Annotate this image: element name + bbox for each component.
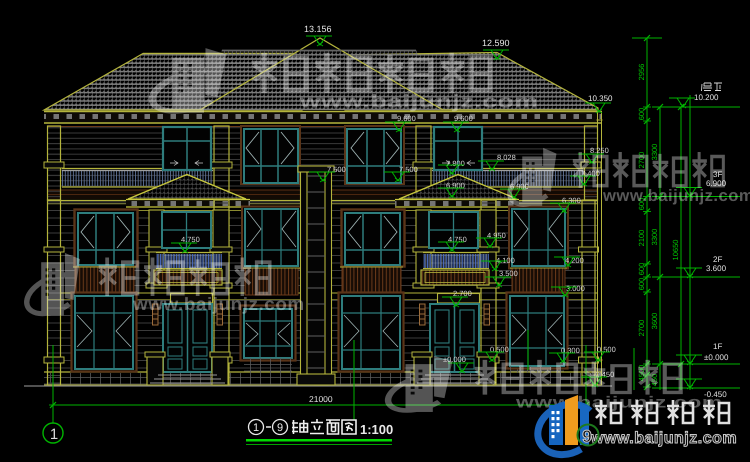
svg-text:2700: 2700 <box>637 152 646 169</box>
svg-text:7.500: 7.500 <box>327 165 346 174</box>
svg-text:10.200: 10.200 <box>694 93 719 102</box>
svg-text:12.590: 12.590 <box>482 38 510 48</box>
svg-text:13.156: 13.156 <box>304 24 332 34</box>
svg-text:3300: 3300 <box>650 144 659 161</box>
svg-text:3600: 3600 <box>650 313 659 330</box>
svg-text:600: 600 <box>637 108 646 121</box>
svg-text:www.baijunjz.com: www.baijunjz.com <box>590 430 737 447</box>
svg-text:2F: 2F <box>713 255 722 264</box>
svg-text:6.300: 6.300 <box>562 196 581 205</box>
svg-text:0.300: 0.300 <box>561 346 580 355</box>
svg-text:1F: 1F <box>713 342 722 351</box>
svg-text:1: 1 <box>253 422 259 434</box>
svg-text:0.500: 0.500 <box>597 345 616 354</box>
svg-text:3.000: 3.000 <box>566 284 585 293</box>
svg-text:0.500: 0.500 <box>490 345 509 354</box>
svg-text:2956: 2956 <box>637 64 646 81</box>
svg-text:3300: 3300 <box>650 229 659 246</box>
svg-text:7.800: 7.800 <box>446 159 465 168</box>
svg-text:2700: 2700 <box>637 320 646 337</box>
svg-text:1:100: 1:100 <box>360 422 393 437</box>
svg-text:2100: 2100 <box>637 230 646 247</box>
svg-text:4.950: 4.950 <box>487 231 506 240</box>
svg-text:7.500: 7.500 <box>399 165 418 174</box>
svg-text:±0.000: ±0.000 <box>704 353 729 362</box>
svg-text:6.900: 6.900 <box>446 181 465 190</box>
svg-text:1: 1 <box>50 426 58 443</box>
svg-text:9: 9 <box>277 422 283 434</box>
svg-text:10650: 10650 <box>671 240 680 261</box>
svg-text:9: 9 <box>582 427 591 446</box>
svg-text:21000: 21000 <box>309 394 333 404</box>
svg-text:3.600: 3.600 <box>706 264 727 273</box>
svg-text:600: 600 <box>637 278 646 291</box>
svg-text:600: 600 <box>637 263 646 276</box>
svg-text:10.350: 10.350 <box>588 94 613 103</box>
